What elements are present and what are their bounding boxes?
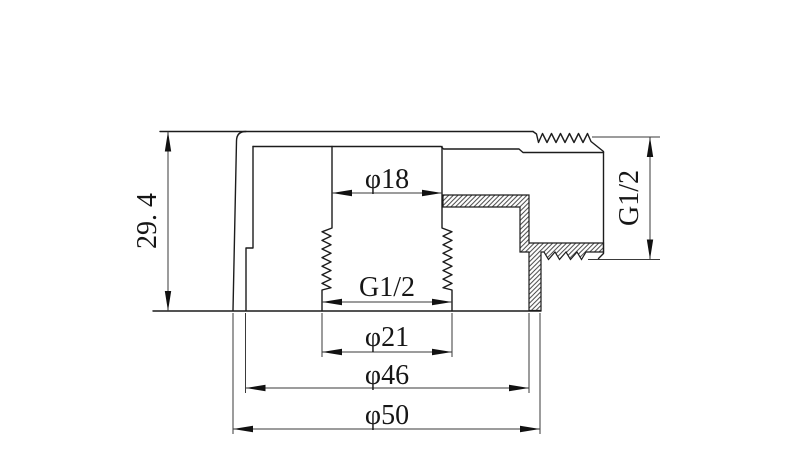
bore-left-wall-thread	[322, 147, 332, 312]
cavity-top-line	[253, 147, 604, 153]
bore-right-wall-thread	[442, 147, 452, 312]
dim-label-phi46: φ46	[365, 360, 409, 391]
outer-left-wall	[233, 132, 246, 311]
dim-arrow-height-top	[165, 132, 171, 152]
dim-arrow-phi18-right	[422, 190, 442, 196]
dim-arrow-phi46-right	[509, 385, 529, 391]
hatched-section-wall	[443, 195, 604, 311]
fitting-section-drawing: 29. 4 φ18 G1/2 φ21 φ46 φ50 G1/2	[0, 0, 800, 476]
dim-label-g12-side: G1/2	[614, 170, 645, 226]
dim-arrow-phi21-right	[432, 349, 452, 355]
dim-arrow-g12side-bottom	[647, 240, 653, 260]
dim-arrow-phi21-left	[322, 349, 342, 355]
dim-arrow-g12int-right	[432, 299, 452, 305]
dim-label-phi21: φ21	[365, 322, 409, 353]
dim-arrow-phi50-left	[233, 426, 253, 432]
dim-arrow-phi50-right	[520, 426, 540, 432]
dim-arrow-phi46-left	[246, 385, 266, 391]
dim-label-height: 29. 4	[132, 193, 163, 249]
technical-drawing-canvas: 29. 4 φ18 G1/2 φ21 φ46 φ50 G1/2	[0, 0, 800, 476]
dim-arrow-g12int-left	[322, 299, 342, 305]
dim-label-g12-internal: G1/2	[359, 272, 415, 303]
dim-arrow-phi18-left	[332, 190, 352, 196]
inner-left-wall	[246, 147, 253, 311]
dim-arrow-g12side-top	[647, 137, 653, 157]
dim-arrow-height-bottom	[165, 291, 171, 311]
dim-label-phi50: φ50	[365, 400, 409, 431]
side-port-thread-outline	[533, 132, 604, 259]
dim-label-phi18: φ18	[365, 164, 409, 195]
